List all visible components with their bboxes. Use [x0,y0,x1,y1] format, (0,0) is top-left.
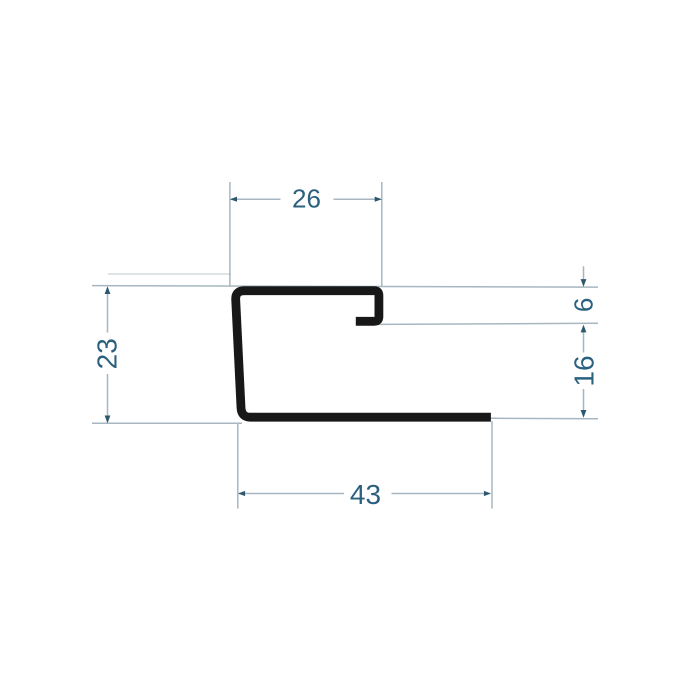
svg-text:26: 26 [292,184,321,214]
svg-text:6: 6 [569,298,599,312]
svg-text:16: 16 [568,355,599,386]
svg-text:43: 43 [350,479,381,510]
svg-text:23: 23 [92,338,123,369]
